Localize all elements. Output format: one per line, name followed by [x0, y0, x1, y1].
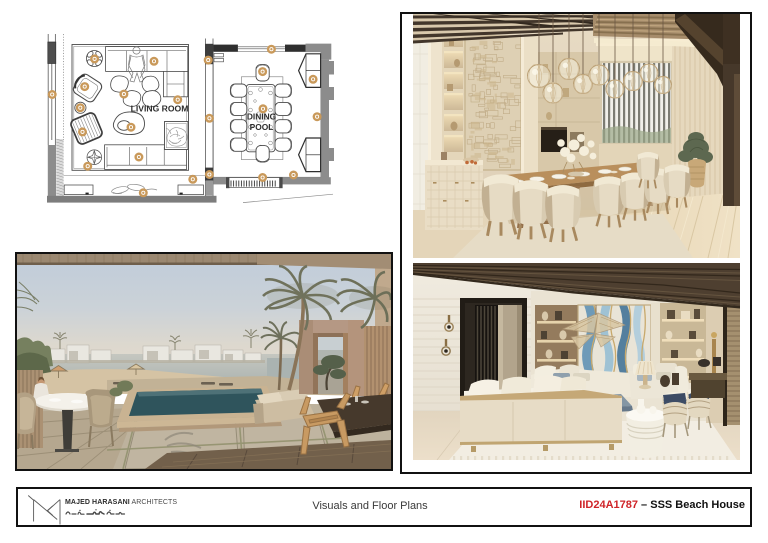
svg-text:POOL: POOL	[250, 122, 274, 132]
svg-text:LIVING ROOM: LIVING ROOM	[131, 104, 189, 114]
svg-text:DINING: DINING	[247, 112, 276, 122]
